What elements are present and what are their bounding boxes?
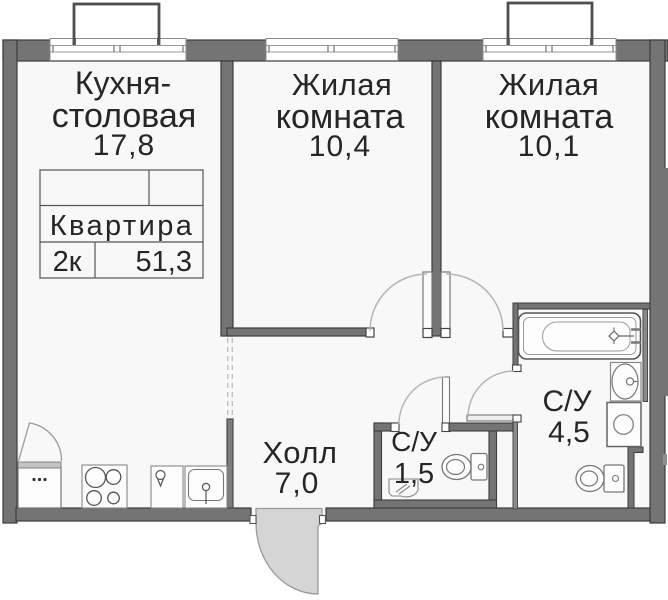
svg-text:Жилая: Жилая	[292, 67, 393, 102]
svg-text:10,1: 10,1	[518, 130, 580, 163]
svg-text:Холл: Холл	[262, 435, 337, 470]
svg-text:17,8: 17,8	[93, 129, 155, 162]
svg-text:10,4: 10,4	[309, 130, 371, 163]
svg-text:51,3: 51,3	[136, 246, 192, 278]
svg-text:Квартира: Квартира	[50, 210, 195, 242]
svg-text:Жилая: Жилая	[499, 67, 600, 102]
svg-text:2к: 2к	[53, 246, 82, 278]
svg-text:4,5: 4,5	[548, 416, 590, 449]
svg-text:С/У: С/У	[391, 426, 437, 457]
svg-text:1,5: 1,5	[394, 458, 434, 490]
svg-text:С/У: С/У	[542, 385, 592, 418]
svg-text:Кухня-: Кухня-	[75, 65, 171, 101]
svg-text:7,0: 7,0	[275, 467, 320, 500]
